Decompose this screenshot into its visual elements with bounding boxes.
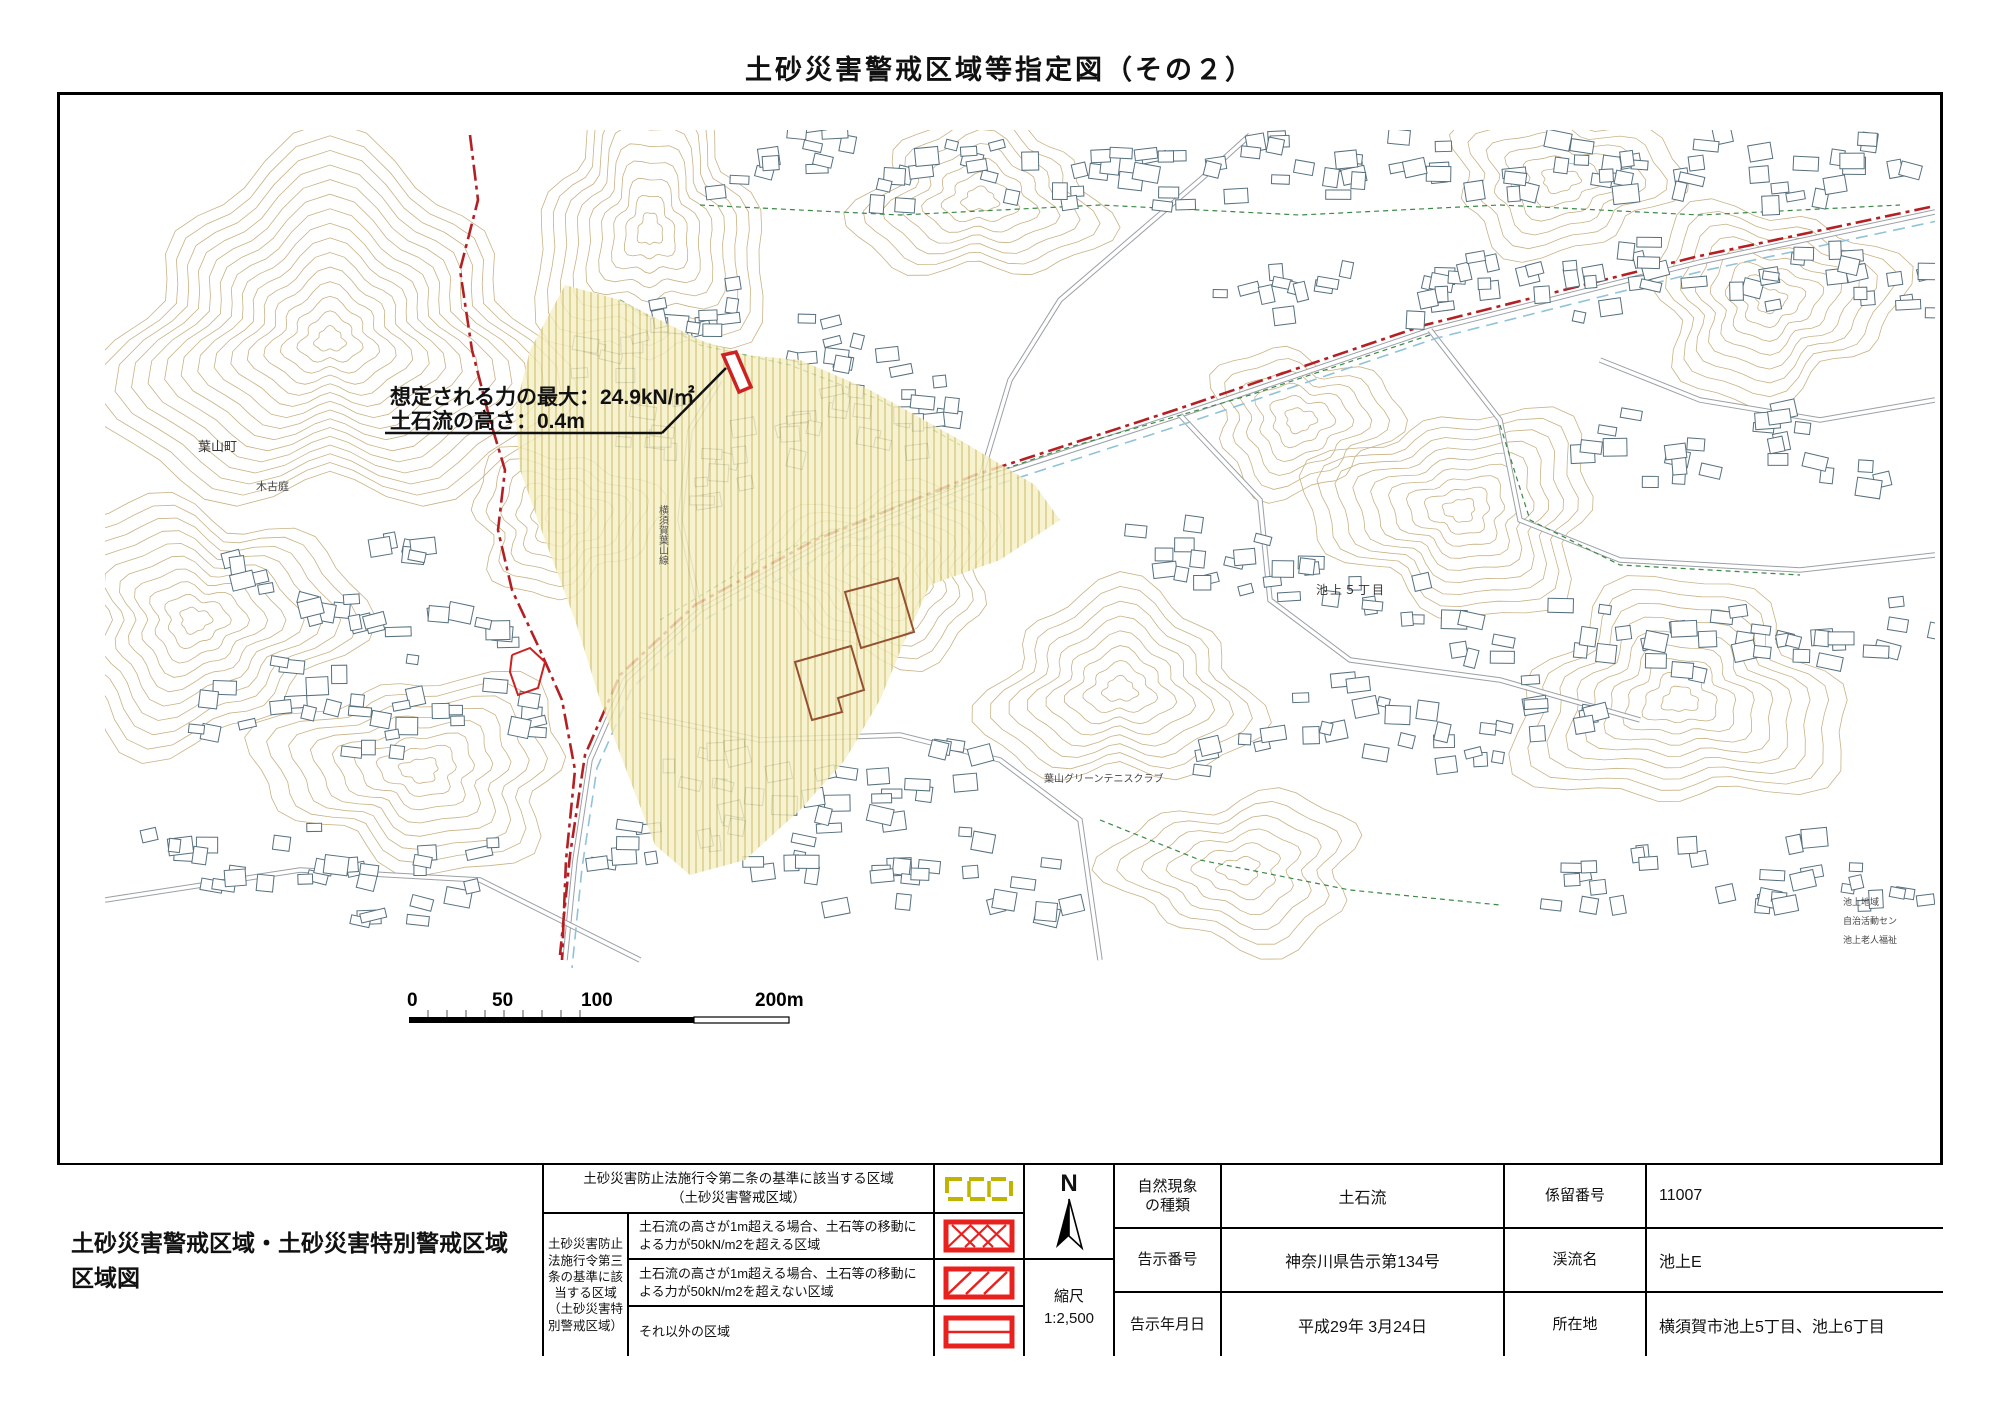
label-chiiki: 池上地域	[1843, 896, 1879, 907]
info-label-stream-name: 渓流名	[1503, 1227, 1645, 1291]
info-value-notice-number: 神奈川県告示第134号	[1220, 1227, 1503, 1291]
legend-swatch-under50	[933, 1258, 1023, 1305]
horizontal-line-swatch-icon	[943, 1315, 1015, 1349]
legend-special-group-label: 土砂災害防止 法施行令第三 条の基準に該 当する区域 （土砂災害特 別警戒区域）	[542, 1212, 627, 1356]
legend-row-under50: 土石流の高さが1m超える場合、土石等の移動に よる力が50kN/m2を超えない区…	[627, 1258, 933, 1305]
scale-tick-0: 0	[407, 990, 418, 1011]
label-town: 葉山町	[198, 439, 237, 454]
label-road: 横須賀葉山線	[657, 504, 669, 565]
warning-zone-swatch-icon	[943, 1174, 1015, 1204]
info-value-mooring-number: 11007	[1645, 1163, 1943, 1227]
diagonal-hatch-swatch-icon	[943, 1266, 1015, 1300]
scale-tick-200: 200m	[755, 990, 804, 1011]
scale-bar: 0 50 100 200m	[395, 990, 835, 1040]
label-tennis-club: 葉山グリーンテニスクラブ	[1044, 772, 1164, 785]
scale-tick-100: 100	[581, 990, 613, 1011]
topo-map: 想定される力の最大：24.9kN/㎡ 土石流の高さ：0.4m 葉山町 木古庭 池…	[105, 130, 1935, 970]
info-value-stream-name: 池上E	[1645, 1227, 1943, 1291]
sheet-title: 土砂災害警戒区域・土砂災害特別警戒区域 区域図	[57, 1163, 542, 1356]
compass-cell: N	[1023, 1163, 1113, 1258]
info-label-location: 所在地	[1503, 1291, 1645, 1356]
info-label-phenomenon: 自然現象 の種類	[1113, 1163, 1220, 1227]
north-arrow-icon	[1047, 1196, 1091, 1252]
legend-row-over50: 土石流の高さが1m超える場合、土石等の移動に よる力が50kN/m2を超える区域	[627, 1212, 933, 1258]
crosshatch-swatch-icon	[943, 1219, 1015, 1253]
legend-row-other: それ以外の区域	[627, 1305, 933, 1356]
legend-warning-title: 土砂災害防止法施行令第二条の基準に該当する区域 （土砂災害警戒区域）	[542, 1163, 933, 1212]
map-linework	[105, 130, 1935, 968]
info-value-location: 横須賀市池上5丁目、池上6丁目	[1645, 1291, 1943, 1356]
scale-tick-50: 50	[492, 990, 513, 1011]
north-label: N	[1060, 1172, 1077, 1196]
scale-label: 縮尺	[1044, 1286, 1094, 1309]
label-ikegami5: 池上５丁目	[1316, 583, 1386, 597]
info-label-notice-number: 告示番号	[1113, 1227, 1220, 1291]
label-jichi: 自治活動セン	[1843, 915, 1897, 926]
legend-swatch-other	[933, 1305, 1023, 1356]
info-value-phenomenon: 土石流	[1220, 1163, 1503, 1227]
legend-swatch-warning	[933, 1163, 1023, 1212]
annotation-height: 土石流の高さ：0.4m	[390, 409, 585, 433]
info-label-mooring-number: 係留番号	[1503, 1163, 1645, 1227]
info-label-notice-date: 告示年月日	[1113, 1291, 1220, 1356]
info-value-notice-date: 平成29年 3月24日	[1220, 1291, 1503, 1356]
warning-zone-area	[515, 285, 1060, 875]
legend-swatch-over50	[933, 1212, 1023, 1258]
annotation-force: 想定される力の最大：24.9kN/㎡	[390, 385, 695, 409]
label-rojin: 池上老人福祉	[1843, 934, 1897, 945]
map-sheet: 土砂災害警戒区域等指定図（その２） 想定される力の最大：24.9kN/㎡	[0, 0, 2000, 1414]
label-kikoba: 木古庭	[256, 479, 289, 493]
scale-cell: 縮尺 1:2,500	[1023, 1258, 1113, 1356]
page-title: 土砂災害警戒区域等指定図（その２）	[0, 48, 2000, 87]
scale-value: 1:2,500	[1044, 1308, 1094, 1331]
